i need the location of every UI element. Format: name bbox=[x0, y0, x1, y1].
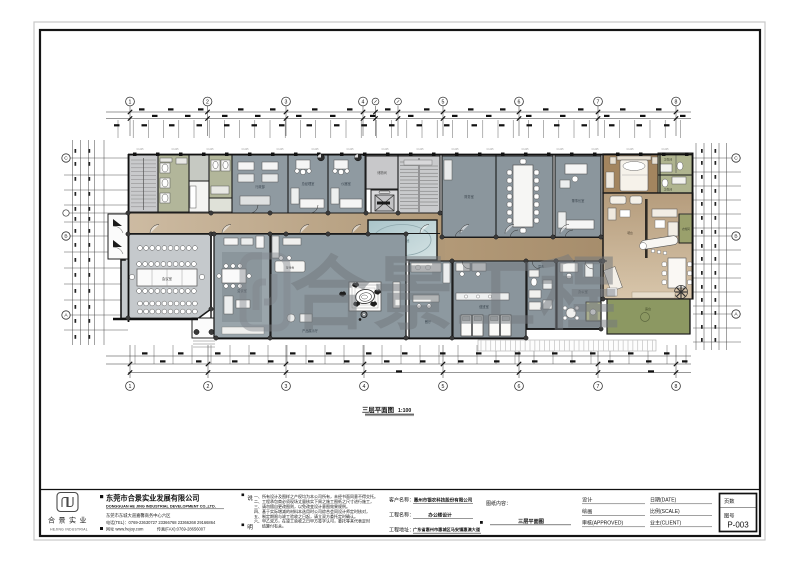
svg-text:1:100: 1:100 bbox=[398, 408, 411, 414]
svg-text:7: 7 bbox=[597, 99, 600, 105]
svg-text:C: C bbox=[64, 156, 68, 162]
svg-text:C1425: C1425 bbox=[136, 148, 144, 151]
svg-text:C1425: C1425 bbox=[416, 148, 424, 151]
svg-text:C1425: C1425 bbox=[591, 148, 599, 151]
svg-text:广东省惠州市惠城区马安镇惠澳大道: 广东省惠州市惠城区马安镇惠澳大道 bbox=[413, 526, 481, 533]
svg-text:工程地址：: 工程地址： bbox=[389, 526, 414, 533]
svg-text:B: B bbox=[734, 234, 737, 240]
svg-text:C1425: C1425 bbox=[206, 148, 214, 151]
svg-text:行政部: 行政部 bbox=[255, 184, 265, 189]
svg-text:东莞市合景实业发展有限公司: 东莞市合景实业发展有限公司 bbox=[106, 494, 199, 503]
svg-text:总经理室: 总经理室 bbox=[302, 181, 315, 186]
svg-text:C1425: C1425 bbox=[381, 148, 389, 151]
svg-text:设计: 设计 bbox=[582, 496, 592, 504]
svg-text:3: 3 bbox=[285, 384, 288, 390]
svg-text:B: B bbox=[64, 234, 67, 240]
svg-text:财务室: 财务室 bbox=[464, 194, 474, 199]
svg-text:露台: 露台 bbox=[645, 306, 651, 311]
svg-text:图纸内容：: 图纸内容： bbox=[486, 500, 511, 507]
svg-text:4: 4 bbox=[362, 99, 365, 105]
svg-text:电话(TEL)：0769-23630727 23366768: 电话(TEL)：0769-23630727 23366768 23366268 … bbox=[106, 519, 216, 525]
svg-text:合景工程: 合景工程 bbox=[290, 250, 622, 339]
svg-text:4: 4 bbox=[363, 384, 366, 390]
svg-text:DONGGUAN HE JING INDUSTRIAL DE: DONGGUAN HE JING INDUSTRIAL DEVELOPMENT … bbox=[106, 505, 216, 509]
svg-text:惠州市银农科技股份有限公司: 惠州市银农科技股份有限公司 bbox=[414, 496, 473, 503]
svg-text:5: 5 bbox=[442, 384, 445, 390]
svg-text:说: 说 bbox=[247, 494, 253, 502]
svg-text:卫生间: 卫生间 bbox=[664, 158, 673, 162]
svg-text:日期(DATE): 日期(DATE) bbox=[650, 498, 677, 504]
svg-text:C1425: C1425 bbox=[451, 148, 459, 151]
svg-text:图号: 图号 bbox=[724, 513, 734, 520]
svg-text:结算付有关。: 结算付有关。 bbox=[254, 523, 286, 529]
svg-text:C1425: C1425 bbox=[556, 148, 564, 151]
svg-text:卫生间: 卫生间 bbox=[664, 188, 673, 192]
svg-text:P-003: P-003 bbox=[727, 521, 749, 530]
svg-text:储物间: 储物间 bbox=[377, 170, 387, 175]
svg-text:合景实业: 合景实业 bbox=[48, 516, 90, 525]
svg-text:C1425: C1425 bbox=[311, 148, 319, 151]
svg-text:东莞市东城大道嘉馨商务中心六区: 东莞市东城大道嘉馨商务中心六区 bbox=[106, 512, 171, 519]
svg-text:HEJING INDUSTRIAL: HEJING INDUSTRIAL bbox=[50, 528, 88, 532]
svg-text:3: 3 bbox=[285, 99, 288, 105]
svg-text:7: 7 bbox=[597, 384, 600, 390]
svg-text:董事长室: 董事长室 bbox=[572, 198, 585, 203]
svg-text:页数: 页数 bbox=[724, 497, 735, 505]
svg-text:1: 1 bbox=[129, 99, 132, 105]
svg-text:C1425: C1425 bbox=[241, 148, 249, 151]
svg-text:办公楼设计: 办公楼设计 bbox=[428, 511, 452, 518]
svg-text:仪器室: 仪器室 bbox=[341, 181, 351, 186]
svg-text:审核(APPROVED): 审核(APPROVED) bbox=[582, 520, 623, 527]
svg-text:工程名称：: 工程名称： bbox=[389, 512, 414, 519]
svg-text:5: 5 bbox=[442, 99, 445, 105]
svg-text:C1425: C1425 bbox=[486, 148, 494, 151]
svg-text:业主(CLIENT): 业主(CLIENT) bbox=[650, 520, 681, 527]
svg-text:明: 明 bbox=[247, 524, 253, 531]
svg-text:比例(SCALE): 比例(SCALE) bbox=[650, 508, 680, 515]
svg-text:C: C bbox=[734, 156, 738, 162]
svg-text:C1425: C1425 bbox=[346, 148, 354, 151]
svg-text:C1425: C1425 bbox=[661, 148, 669, 151]
svg-text:三层平面图: 三层平面图 bbox=[518, 517, 544, 525]
svg-text:客户名称：: 客户名称： bbox=[389, 497, 414, 504]
svg-text:会议室: 会议室 bbox=[162, 276, 173, 281]
svg-text:衣帽间: 衣帽间 bbox=[682, 227, 690, 231]
svg-text:8: 8 bbox=[675, 99, 678, 105]
svg-text:网址 www.hejoy.com 传真(FAX):0: 网址 www.hejoy.com 传真(FAX):0769-28656007 bbox=[106, 526, 206, 532]
svg-text:2: 2 bbox=[207, 384, 210, 390]
svg-text:C1425: C1425 bbox=[521, 148, 529, 151]
svg-text:6: 6 bbox=[518, 99, 521, 105]
svg-text:8: 8 bbox=[675, 384, 678, 390]
svg-text:C1425: C1425 bbox=[626, 148, 634, 151]
svg-text:1: 1 bbox=[129, 384, 132, 390]
svg-text:C1425: C1425 bbox=[171, 148, 179, 151]
svg-text:6: 6 bbox=[518, 384, 521, 390]
svg-text:绘画: 绘画 bbox=[582, 507, 592, 515]
svg-text:2: 2 bbox=[206, 99, 209, 105]
svg-text:C1425: C1425 bbox=[276, 148, 284, 151]
svg-text:吧台: 吧台 bbox=[627, 231, 633, 235]
svg-text:三层平面图: 三层平面图 bbox=[362, 405, 394, 414]
